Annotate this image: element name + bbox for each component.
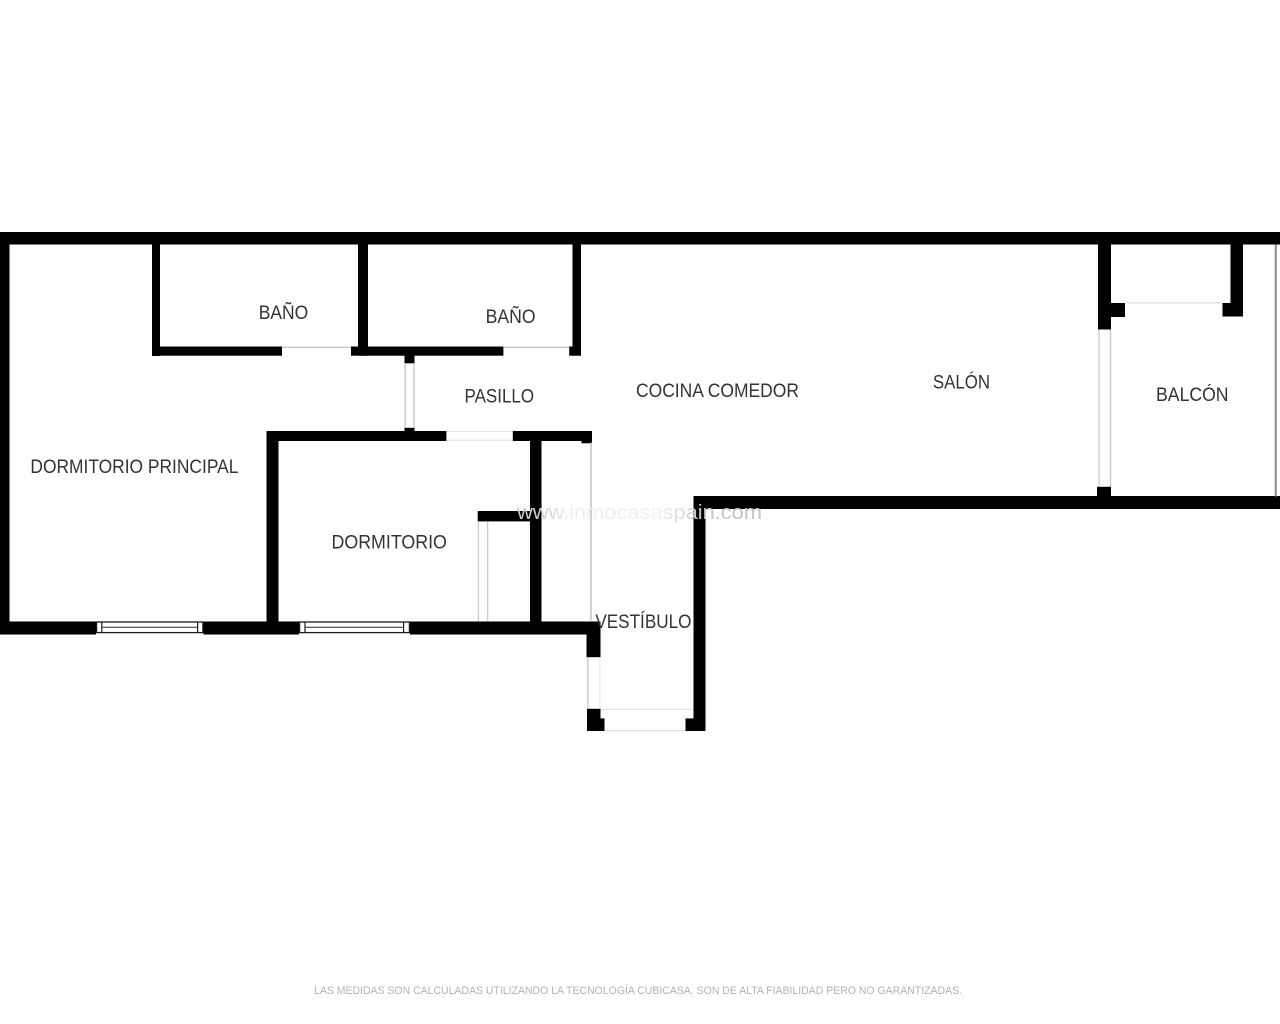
svg-text:DORMITORIO: DORMITORIO bbox=[332, 533, 447, 554]
svg-text:VESTÍBULO: VESTÍBULO bbox=[595, 612, 691, 633]
svg-text:www.inmocasaspain.com: www.inmocasaspain.com bbox=[516, 502, 762, 524]
svg-text:BALCÓN: BALCÓN bbox=[1156, 384, 1229, 406]
svg-text:BAÑO: BAÑO bbox=[486, 306, 536, 328]
svg-text:BAÑO: BAÑO bbox=[259, 302, 309, 324]
svg-text:SALÓN: SALÓN bbox=[933, 372, 990, 394]
svg-text:LAS MEDIDAS SON CALCULADAS UTI: LAS MEDIDAS SON CALCULADAS UTILIZANDO LA… bbox=[314, 984, 962, 997]
svg-text:COCINA COMEDOR: COCINA COMEDOR bbox=[636, 381, 799, 402]
svg-text:PASILLO: PASILLO bbox=[465, 386, 535, 407]
svg-text:DORMITORIO PRINCIPAL: DORMITORIO PRINCIPAL bbox=[30, 457, 238, 478]
